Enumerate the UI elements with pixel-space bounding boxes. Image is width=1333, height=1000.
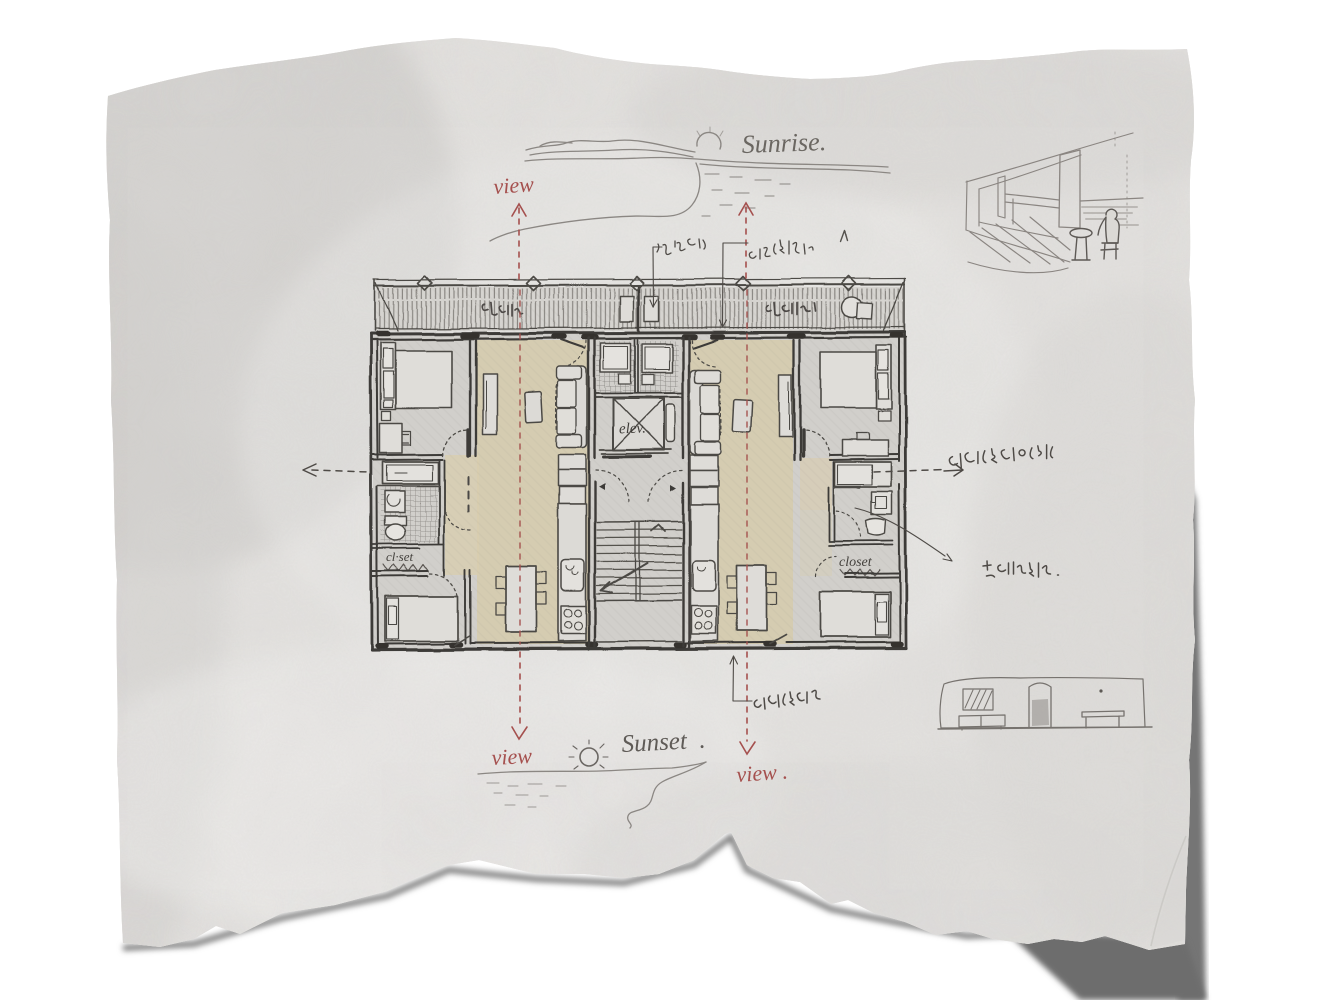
svg-text:view: view [493, 171, 535, 199]
svg-text:view: view [491, 743, 533, 770]
svg-text:closet: closet [839, 555, 873, 570]
svg-text:view .: view . [736, 758, 789, 787]
svg-text:Sunrise.: Sunrise. [741, 127, 826, 159]
svg-text:cl·set: cl·set [386, 549, 413, 564]
svg-text:Sunset .: Sunset . [621, 727, 706, 758]
svg-text:elev.: elev. [619, 420, 646, 437]
